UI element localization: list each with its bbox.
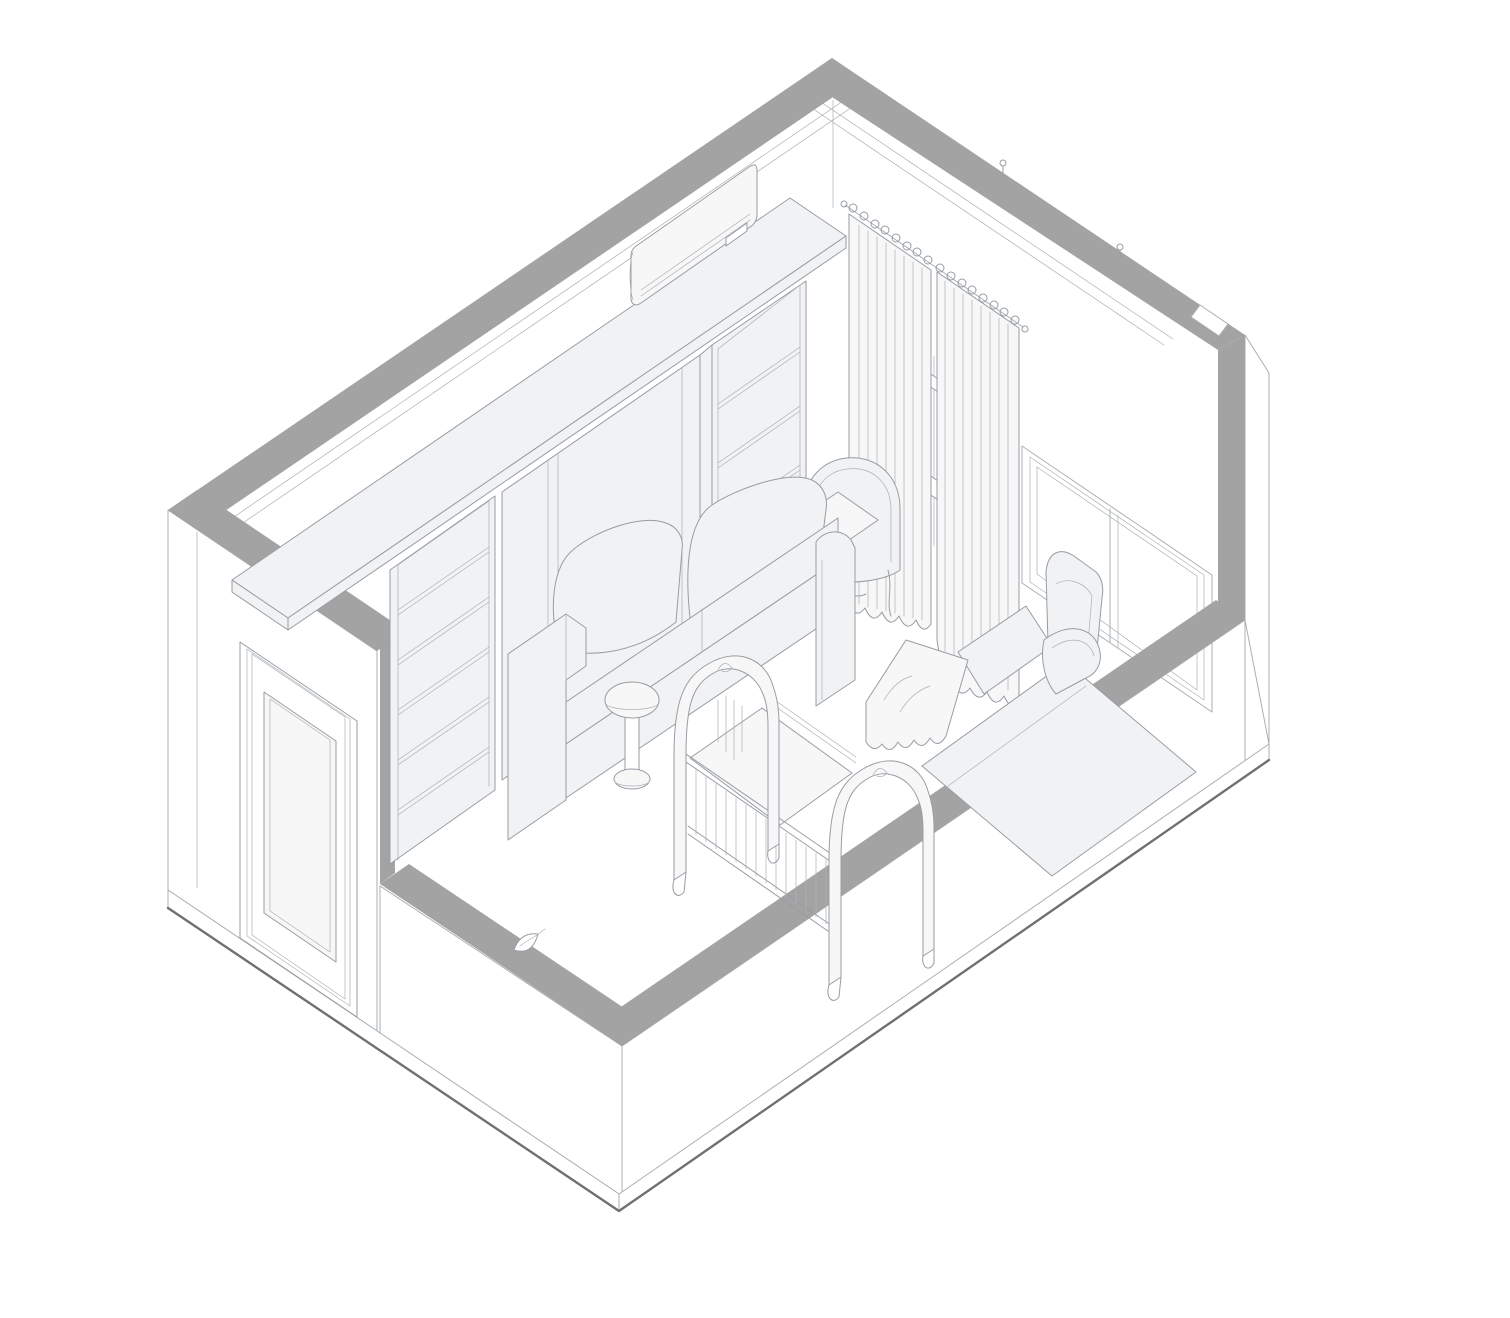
wall-clip-1	[1000, 160, 1006, 173]
blanket	[866, 640, 968, 750]
room-drawing-canvas	[0, 0, 1510, 1318]
rod-finial-left	[841, 201, 847, 207]
bookshelf-left	[390, 496, 495, 864]
axonometric-room-drawing	[0, 0, 1510, 1318]
corner-pillar	[1218, 335, 1245, 634]
rod-finial-right	[1022, 326, 1028, 332]
exterior-wall-right-edge	[1245, 335, 1269, 744]
table-top	[605, 682, 659, 718]
